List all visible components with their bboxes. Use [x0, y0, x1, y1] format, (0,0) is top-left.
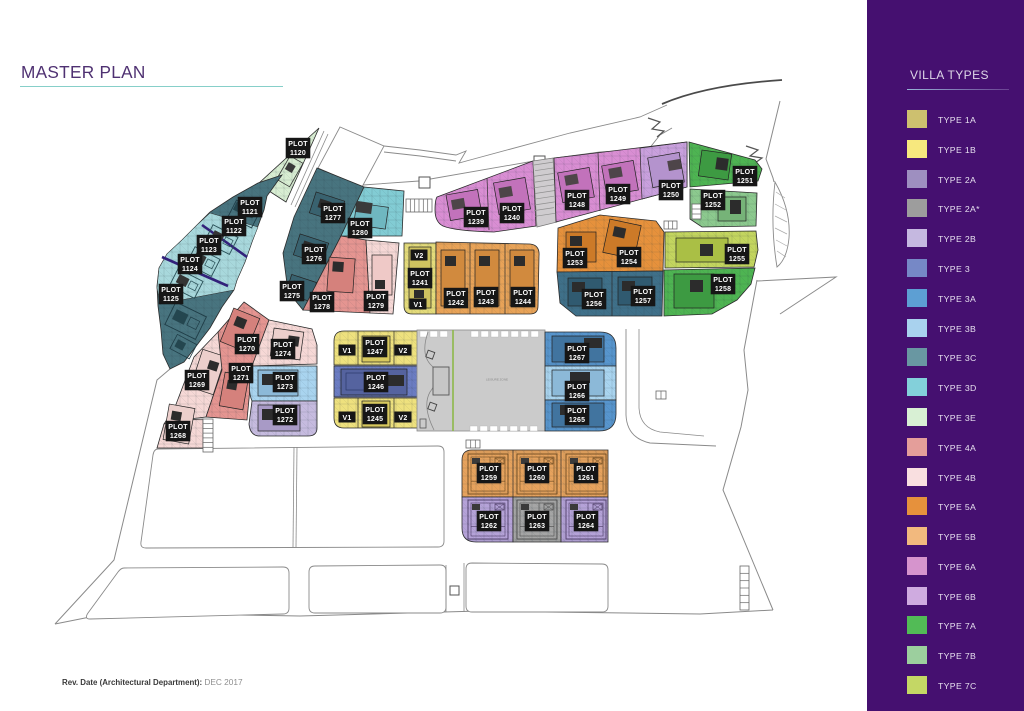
svg-text:PLOT: PLOT	[502, 206, 522, 213]
svg-text:PLOT: PLOT	[180, 257, 200, 264]
svg-text:PLOT: PLOT	[161, 287, 181, 294]
svg-text:1244: 1244	[515, 299, 531, 306]
svg-text:1268: 1268	[170, 433, 186, 440]
svg-text:PLOT: PLOT	[275, 408, 295, 415]
svg-text:1121: 1121	[242, 209, 258, 216]
svg-text:1123: 1123	[201, 247, 217, 254]
svg-text:1266: 1266	[569, 393, 585, 400]
svg-text:1280: 1280	[352, 230, 368, 237]
svg-text:1251: 1251	[737, 178, 753, 185]
svg-text:1245: 1245	[367, 416, 383, 423]
svg-text:PLOT: PLOT	[576, 514, 596, 521]
svg-text:1247: 1247	[367, 349, 383, 356]
svg-text:1253: 1253	[567, 260, 583, 267]
svg-text:1260: 1260	[529, 475, 545, 482]
svg-text:PLOT: PLOT	[187, 373, 207, 380]
svg-text:PLOT: PLOT	[410, 271, 430, 278]
svg-text:1264: 1264	[578, 523, 594, 530]
svg-text:1241: 1241	[412, 280, 428, 287]
svg-text:PLOT: PLOT	[661, 183, 681, 190]
svg-text:1122: 1122	[226, 228, 242, 235]
svg-text:PLOT: PLOT	[576, 466, 596, 473]
svg-text:PLOT: PLOT	[479, 466, 499, 473]
svg-text:1261: 1261	[578, 475, 594, 482]
svg-text:1272: 1272	[277, 417, 293, 424]
svg-text:PLOT: PLOT	[366, 294, 386, 301]
svg-text:1243: 1243	[478, 299, 494, 306]
svg-text:PLOT: PLOT	[273, 342, 293, 349]
svg-text:PLOT: PLOT	[312, 295, 332, 302]
svg-text:V1: V1	[343, 348, 352, 355]
svg-text:PLOT: PLOT	[304, 247, 324, 254]
svg-text:1267: 1267	[569, 355, 585, 362]
svg-text:1239: 1239	[468, 219, 484, 226]
svg-text:1120: 1120	[290, 150, 306, 157]
svg-text:1240: 1240	[504, 215, 520, 222]
svg-text:PLOT: PLOT	[323, 206, 343, 213]
svg-text:PLOT: PLOT	[567, 346, 587, 353]
svg-text:PLOT: PLOT	[527, 466, 547, 473]
svg-text:LEISURE ZONE: LEISURE ZONE	[486, 378, 508, 382]
svg-text:1249: 1249	[610, 196, 626, 203]
svg-text:PLOT: PLOT	[231, 366, 251, 373]
svg-text:PLOT: PLOT	[237, 337, 257, 344]
svg-text:PLOT: PLOT	[567, 193, 587, 200]
svg-text:V1: V1	[414, 302, 423, 309]
svg-text:PLOT: PLOT	[366, 375, 386, 382]
svg-text:1258: 1258	[715, 286, 731, 293]
svg-text:PLOT: PLOT	[513, 290, 533, 297]
svg-text:1254: 1254	[621, 259, 637, 266]
svg-text:PLOT: PLOT	[466, 210, 486, 217]
svg-text:1246: 1246	[368, 384, 384, 391]
svg-text:1262: 1262	[481, 523, 497, 530]
svg-text:1257: 1257	[635, 298, 651, 305]
svg-text:PLOT: PLOT	[365, 340, 385, 347]
svg-text:PLOT: PLOT	[288, 141, 308, 148]
svg-text:PLOT: PLOT	[567, 408, 587, 415]
svg-text:V2: V2	[399, 415, 408, 422]
svg-text:PLOT: PLOT	[567, 384, 587, 391]
svg-text:PLOT: PLOT	[350, 221, 370, 228]
svg-text:PLOT: PLOT	[365, 407, 385, 414]
svg-text:1125: 1125	[163, 296, 179, 303]
svg-text:1242: 1242	[448, 300, 464, 307]
svg-text:PLOT: PLOT	[476, 290, 496, 297]
svg-text:1248: 1248	[569, 202, 585, 209]
svg-text:1263: 1263	[529, 523, 545, 530]
svg-text:1270: 1270	[239, 346, 255, 353]
svg-text:1124: 1124	[182, 266, 198, 273]
svg-text:PLOT: PLOT	[727, 247, 747, 254]
svg-text:1256: 1256	[586, 301, 602, 308]
svg-text:PLOT: PLOT	[168, 424, 188, 431]
svg-text:V2: V2	[399, 348, 408, 355]
svg-text:PLOT: PLOT	[446, 291, 466, 298]
svg-text:1274: 1274	[275, 351, 291, 358]
svg-text:PLOT: PLOT	[608, 187, 628, 194]
svg-text:PLOT: PLOT	[479, 514, 499, 521]
svg-text:1269: 1269	[189, 382, 205, 389]
svg-text:1277: 1277	[325, 215, 341, 222]
svg-text:1275: 1275	[284, 293, 300, 300]
svg-text:1250: 1250	[663, 192, 679, 199]
svg-text:1279: 1279	[368, 303, 384, 310]
svg-text:PLOT: PLOT	[633, 289, 653, 296]
svg-text:PLOT: PLOT	[619, 250, 639, 257]
svg-text:PLOT: PLOT	[275, 375, 295, 382]
svg-text:1276: 1276	[306, 256, 322, 263]
svg-text:V1: V1	[343, 415, 352, 422]
svg-text:PLOT: PLOT	[240, 200, 260, 207]
svg-text:1252: 1252	[705, 202, 721, 209]
svg-text:PLOT: PLOT	[735, 169, 755, 176]
svg-text:PLOT: PLOT	[584, 292, 604, 299]
svg-text:PLOT: PLOT	[703, 193, 723, 200]
svg-text:PLOT: PLOT	[282, 284, 302, 291]
svg-text:1273: 1273	[277, 384, 293, 391]
svg-text:1259: 1259	[481, 475, 497, 482]
svg-text:PLOT: PLOT	[565, 251, 585, 258]
svg-text:PLOT: PLOT	[199, 238, 219, 245]
svg-text:1271: 1271	[233, 375, 249, 382]
svg-text:1265: 1265	[569, 417, 585, 424]
svg-text:PLOT: PLOT	[224, 219, 244, 226]
svg-text:PLOT: PLOT	[713, 277, 733, 284]
svg-text:1255: 1255	[729, 256, 745, 263]
svg-text:1278: 1278	[314, 304, 330, 311]
svg-text:V2: V2	[415, 253, 424, 260]
svg-text:PLOT: PLOT	[527, 514, 547, 521]
